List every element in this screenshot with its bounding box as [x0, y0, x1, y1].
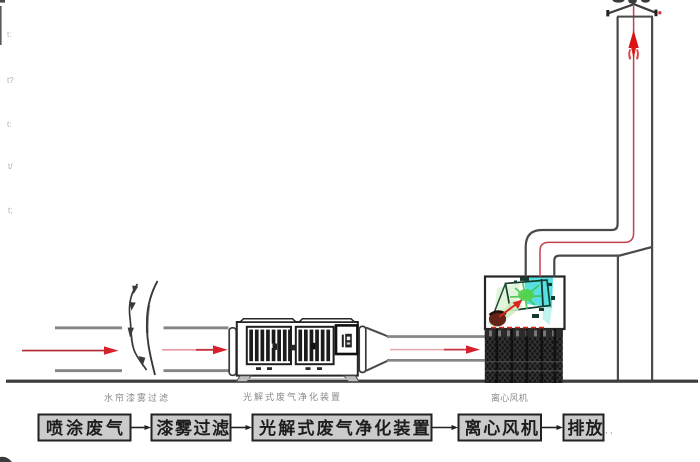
svg-text:光解式废气净化装置: 光解式废气净化装置 [243, 391, 342, 402]
svg-text:漆雾过滤: 漆雾过滤 [157, 418, 231, 438]
svg-text:光解式废气净化装置: 光解式废气净化装置 [258, 418, 432, 438]
svg-text:t:: t: [7, 120, 11, 129]
svg-text:排放: 排放 [568, 418, 604, 438]
svg-text:喷涂废气: 喷涂废气 [46, 418, 126, 438]
svg-text:, ,: , , [605, 425, 613, 435]
svg-text:t;: t; [8, 206, 12, 215]
svg-text:t/: t/ [8, 162, 13, 171]
svg-text:水帘漆雾过滤: 水帘漆雾过滤 [104, 392, 170, 403]
svg-text:t:: t: [7, 30, 11, 39]
svg-text:t?: t? [7, 76, 14, 85]
svg-text:离心风机: 离心风机 [491, 392, 528, 403]
svg-text:离心风机: 离心风机 [465, 418, 540, 438]
